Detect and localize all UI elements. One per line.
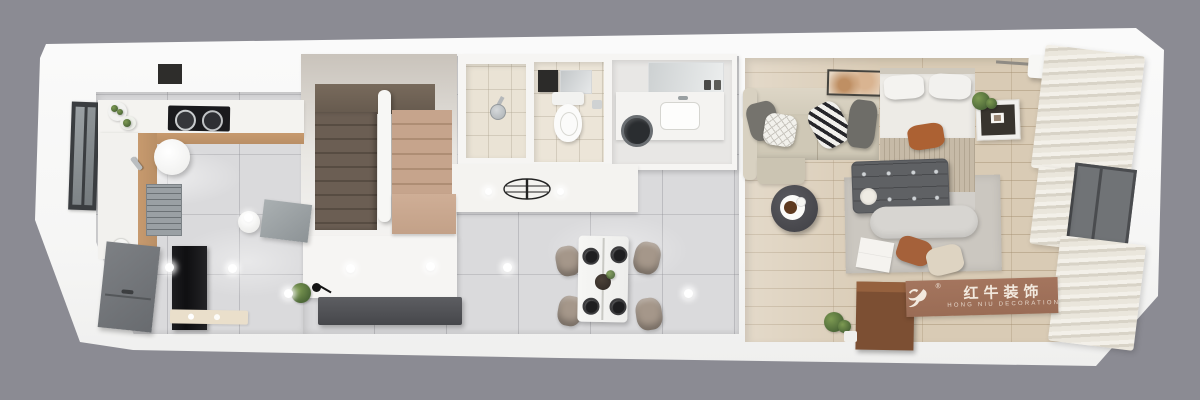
toiletry-bottle: [714, 80, 721, 90]
kitchen-window: [68, 102, 100, 211]
cooking-pot: [175, 110, 196, 131]
window-pane: [72, 107, 84, 205]
window-pane: [84, 107, 95, 205]
coffee-table: [771, 185, 818, 232]
mat-item: [214, 314, 220, 320]
place-setting: [582, 298, 599, 315]
drawer-handle: [121, 289, 133, 294]
toilet-paper-holder: [592, 100, 602, 109]
plant-pot: [844, 331, 857, 342]
throw-pillow-diamond: [762, 112, 799, 149]
console-desk: [318, 297, 462, 325]
dessert: [784, 201, 797, 214]
dining-table: [577, 236, 628, 323]
downlight: [284, 289, 293, 298]
photo: [994, 115, 1001, 121]
stairs-lower-flight: [392, 110, 452, 196]
ceiling-drying-rack: [502, 177, 552, 201]
downlight: [485, 188, 492, 195]
place-setting: [610, 246, 627, 263]
gray-sideboard: [98, 241, 161, 332]
serving-plate: [780, 195, 805, 220]
table-plant: [606, 270, 615, 279]
toiletry-bottle: [704, 80, 711, 90]
basin-faucet: [678, 96, 688, 100]
place-setting: [609, 298, 626, 315]
photo-frame: [991, 113, 1004, 123]
washing-machine: [621, 115, 653, 147]
registered-trademark: ®: [936, 283, 941, 290]
cooking-pot: [202, 110, 223, 131]
downlight: [346, 264, 355, 273]
vegetable-plate: [120, 116, 136, 130]
stairs-upper-flight: [315, 112, 377, 230]
downlight: [557, 188, 564, 195]
laundry-mirror: [648, 62, 724, 94]
place-setting: [582, 248, 599, 265]
cabinet-recess: [158, 64, 182, 84]
bathroom-vanity: [538, 70, 558, 92]
round-table: [154, 139, 190, 175]
window-mullion: [1091, 169, 1103, 243]
downlight: [228, 264, 237, 273]
kitchen-mat: [170, 309, 248, 324]
cup: [796, 197, 806, 207]
downlight: [165, 263, 174, 272]
nightstand-plant: [986, 98, 997, 109]
curtains: [1031, 44, 1145, 179]
floor-plan-render: ® 红牛装饰 HONG NIU DECORATION: [0, 0, 1200, 400]
drawer-seam: [105, 294, 151, 301]
kitchen-sink: [146, 184, 182, 236]
curtains: [1048, 235, 1146, 351]
sofa-chaise: [757, 158, 805, 184]
under-stair-cabinet: [260, 199, 312, 243]
bed-pillow: [928, 73, 971, 100]
bed-pillow: [883, 74, 925, 101]
cooktop: [168, 105, 230, 131]
potted-plant: [291, 283, 311, 303]
washbasin: [660, 102, 700, 130]
toilet-bowl: [554, 104, 582, 142]
downlight: [244, 213, 253, 222]
bed-bench: [870, 205, 979, 239]
bathroom-mirror: [560, 70, 592, 94]
stair-landing-bottom: [392, 194, 456, 234]
downlight: [426, 262, 435, 271]
toilet-seat-line: [560, 112, 578, 136]
wall-art: [827, 69, 883, 96]
watermark-sign: ® 红牛装饰 HONG NIU DECORATION: [906, 277, 1059, 317]
downlight: [503, 263, 512, 272]
stair-railing: [378, 90, 391, 222]
rug-scrunchie: [860, 188, 877, 205]
bull-logo: [904, 285, 931, 312]
mat-item: [188, 314, 194, 320]
downlight: [684, 289, 693, 298]
open-book: [856, 237, 895, 272]
shower-head: [490, 104, 506, 120]
